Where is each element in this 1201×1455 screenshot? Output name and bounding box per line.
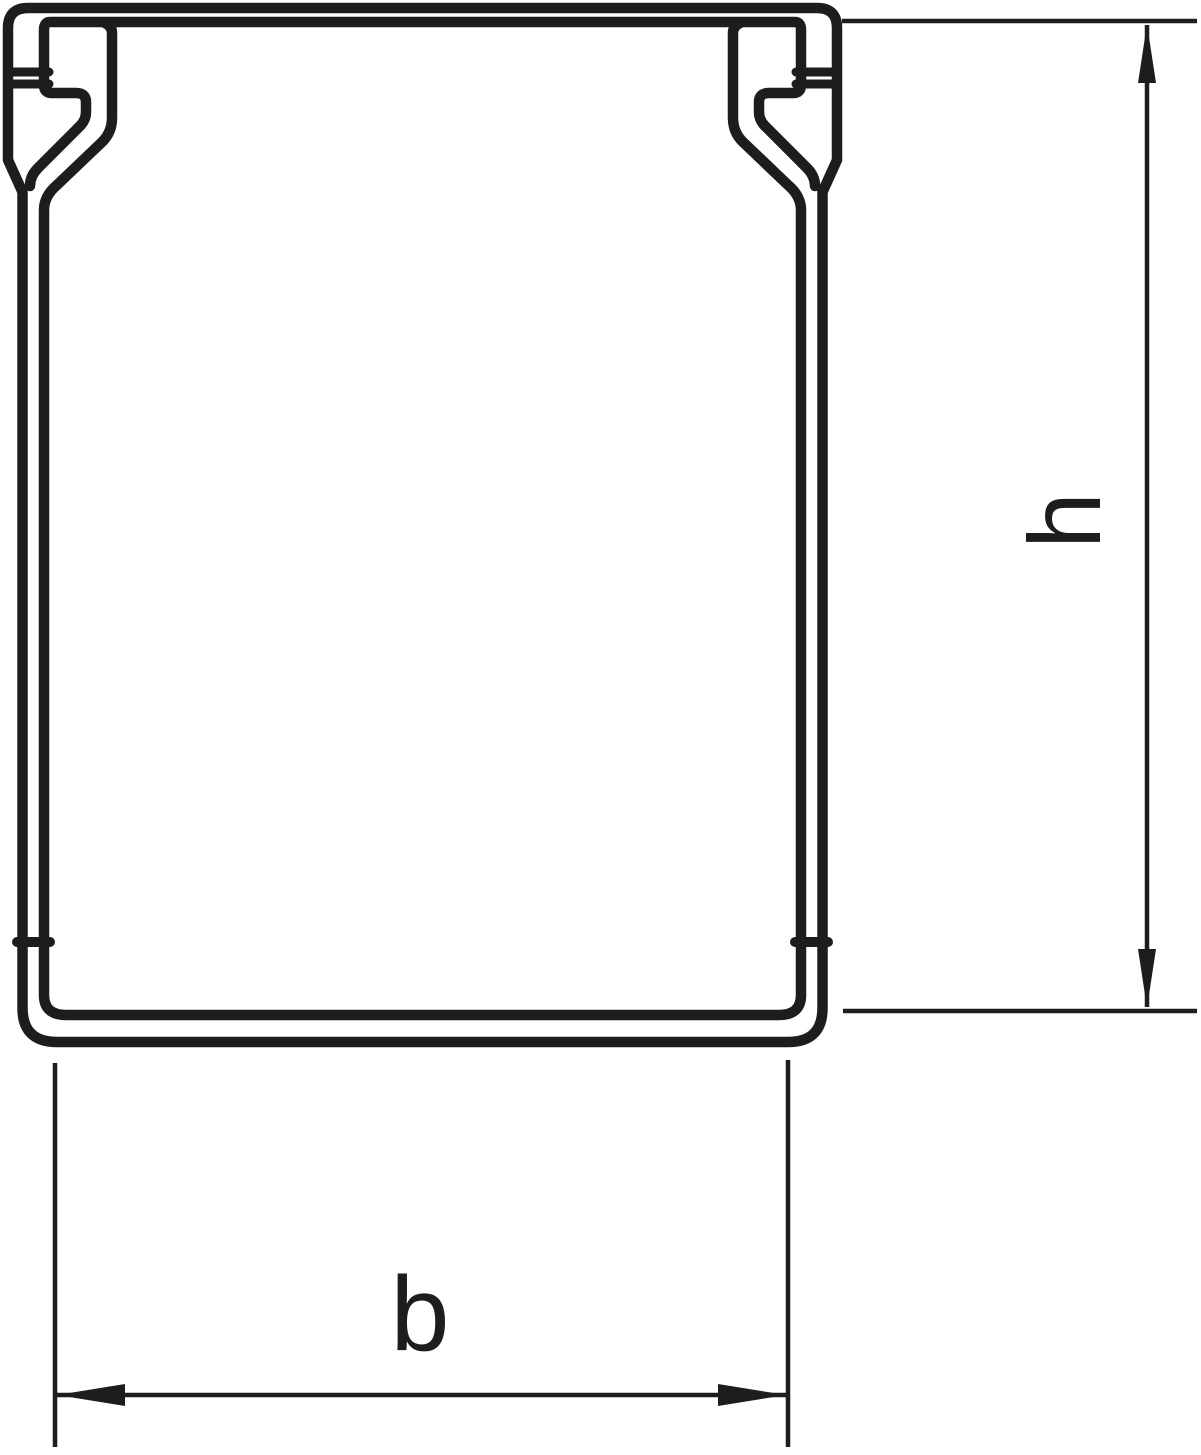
dimension-lines-group — [55, 21, 1197, 1447]
dimension-fills-group: h b — [57, 24, 1156, 1406]
width-dimension-label: b — [391, 1255, 450, 1373]
height-dimension-label: h — [1008, 492, 1122, 549]
height-arrowhead-down — [1138, 949, 1156, 1008]
height-arrowhead-up — [1138, 24, 1156, 83]
width-arrowhead-left — [57, 1384, 125, 1406]
duct-outer-contour — [8, 8, 837, 1042]
duct-cross-section-drawing: h b — [0, 0, 1201, 1455]
duct-cover-groove — [30, 22, 815, 186]
width-arrowhead-right — [718, 1384, 786, 1406]
linework-group — [8, 8, 1197, 1447]
duct-inner-contour — [44, 23, 801, 1015]
